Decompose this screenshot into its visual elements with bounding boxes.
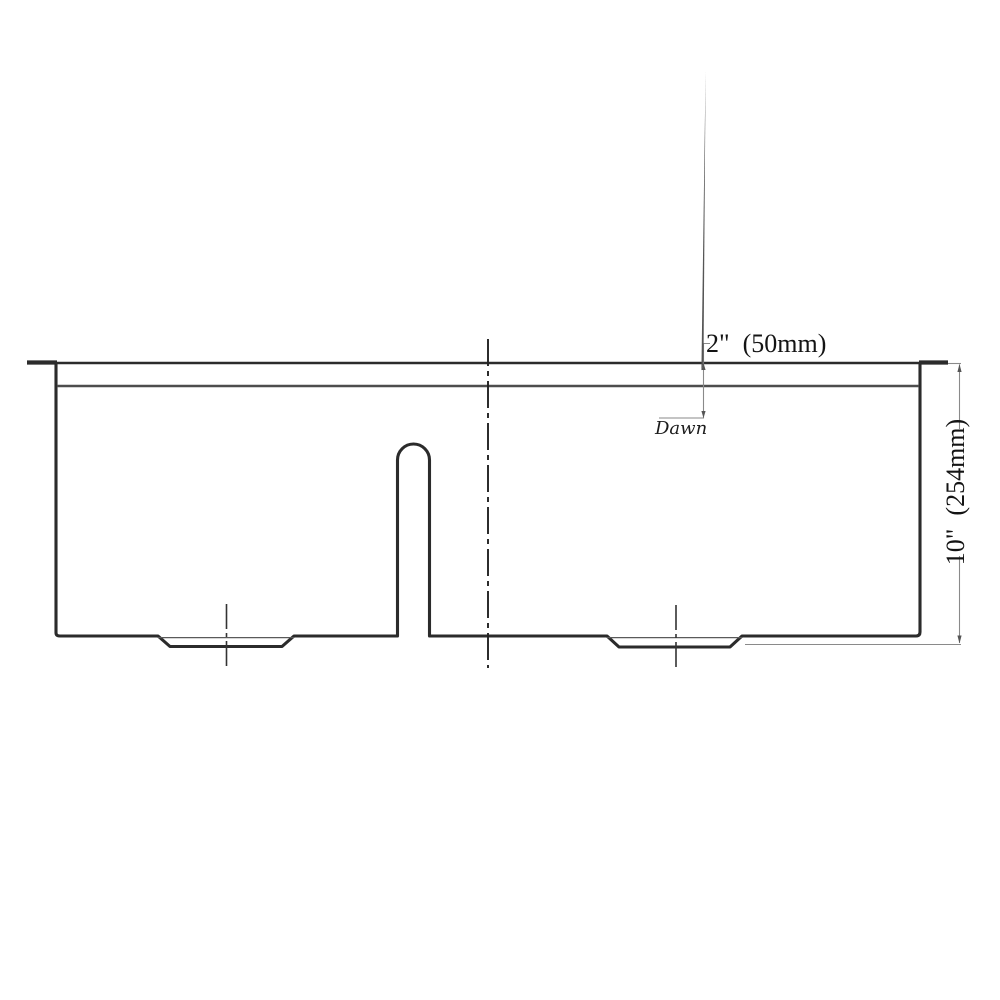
top-dimension-arrow-up <box>701 71 705 371</box>
sink-technical-drawing: 2" (50mm) 10" (254mm) Dawn <box>0 0 1000 1000</box>
top-dimension-arrowhead-lower <box>701 411 705 418</box>
side-dimension-arrowhead-top <box>957 364 961 372</box>
side-dimension-arrowhead-bottom <box>957 636 961 644</box>
top-dimension-label: 2" (50mm) <box>706 329 826 358</box>
drawing-page: 2" (50mm) 10" (254mm) Dawn <box>0 0 1000 1000</box>
side-dimension-label: 10" (254mm) <box>941 419 970 565</box>
brand-logo-text: Dawn <box>654 418 707 439</box>
